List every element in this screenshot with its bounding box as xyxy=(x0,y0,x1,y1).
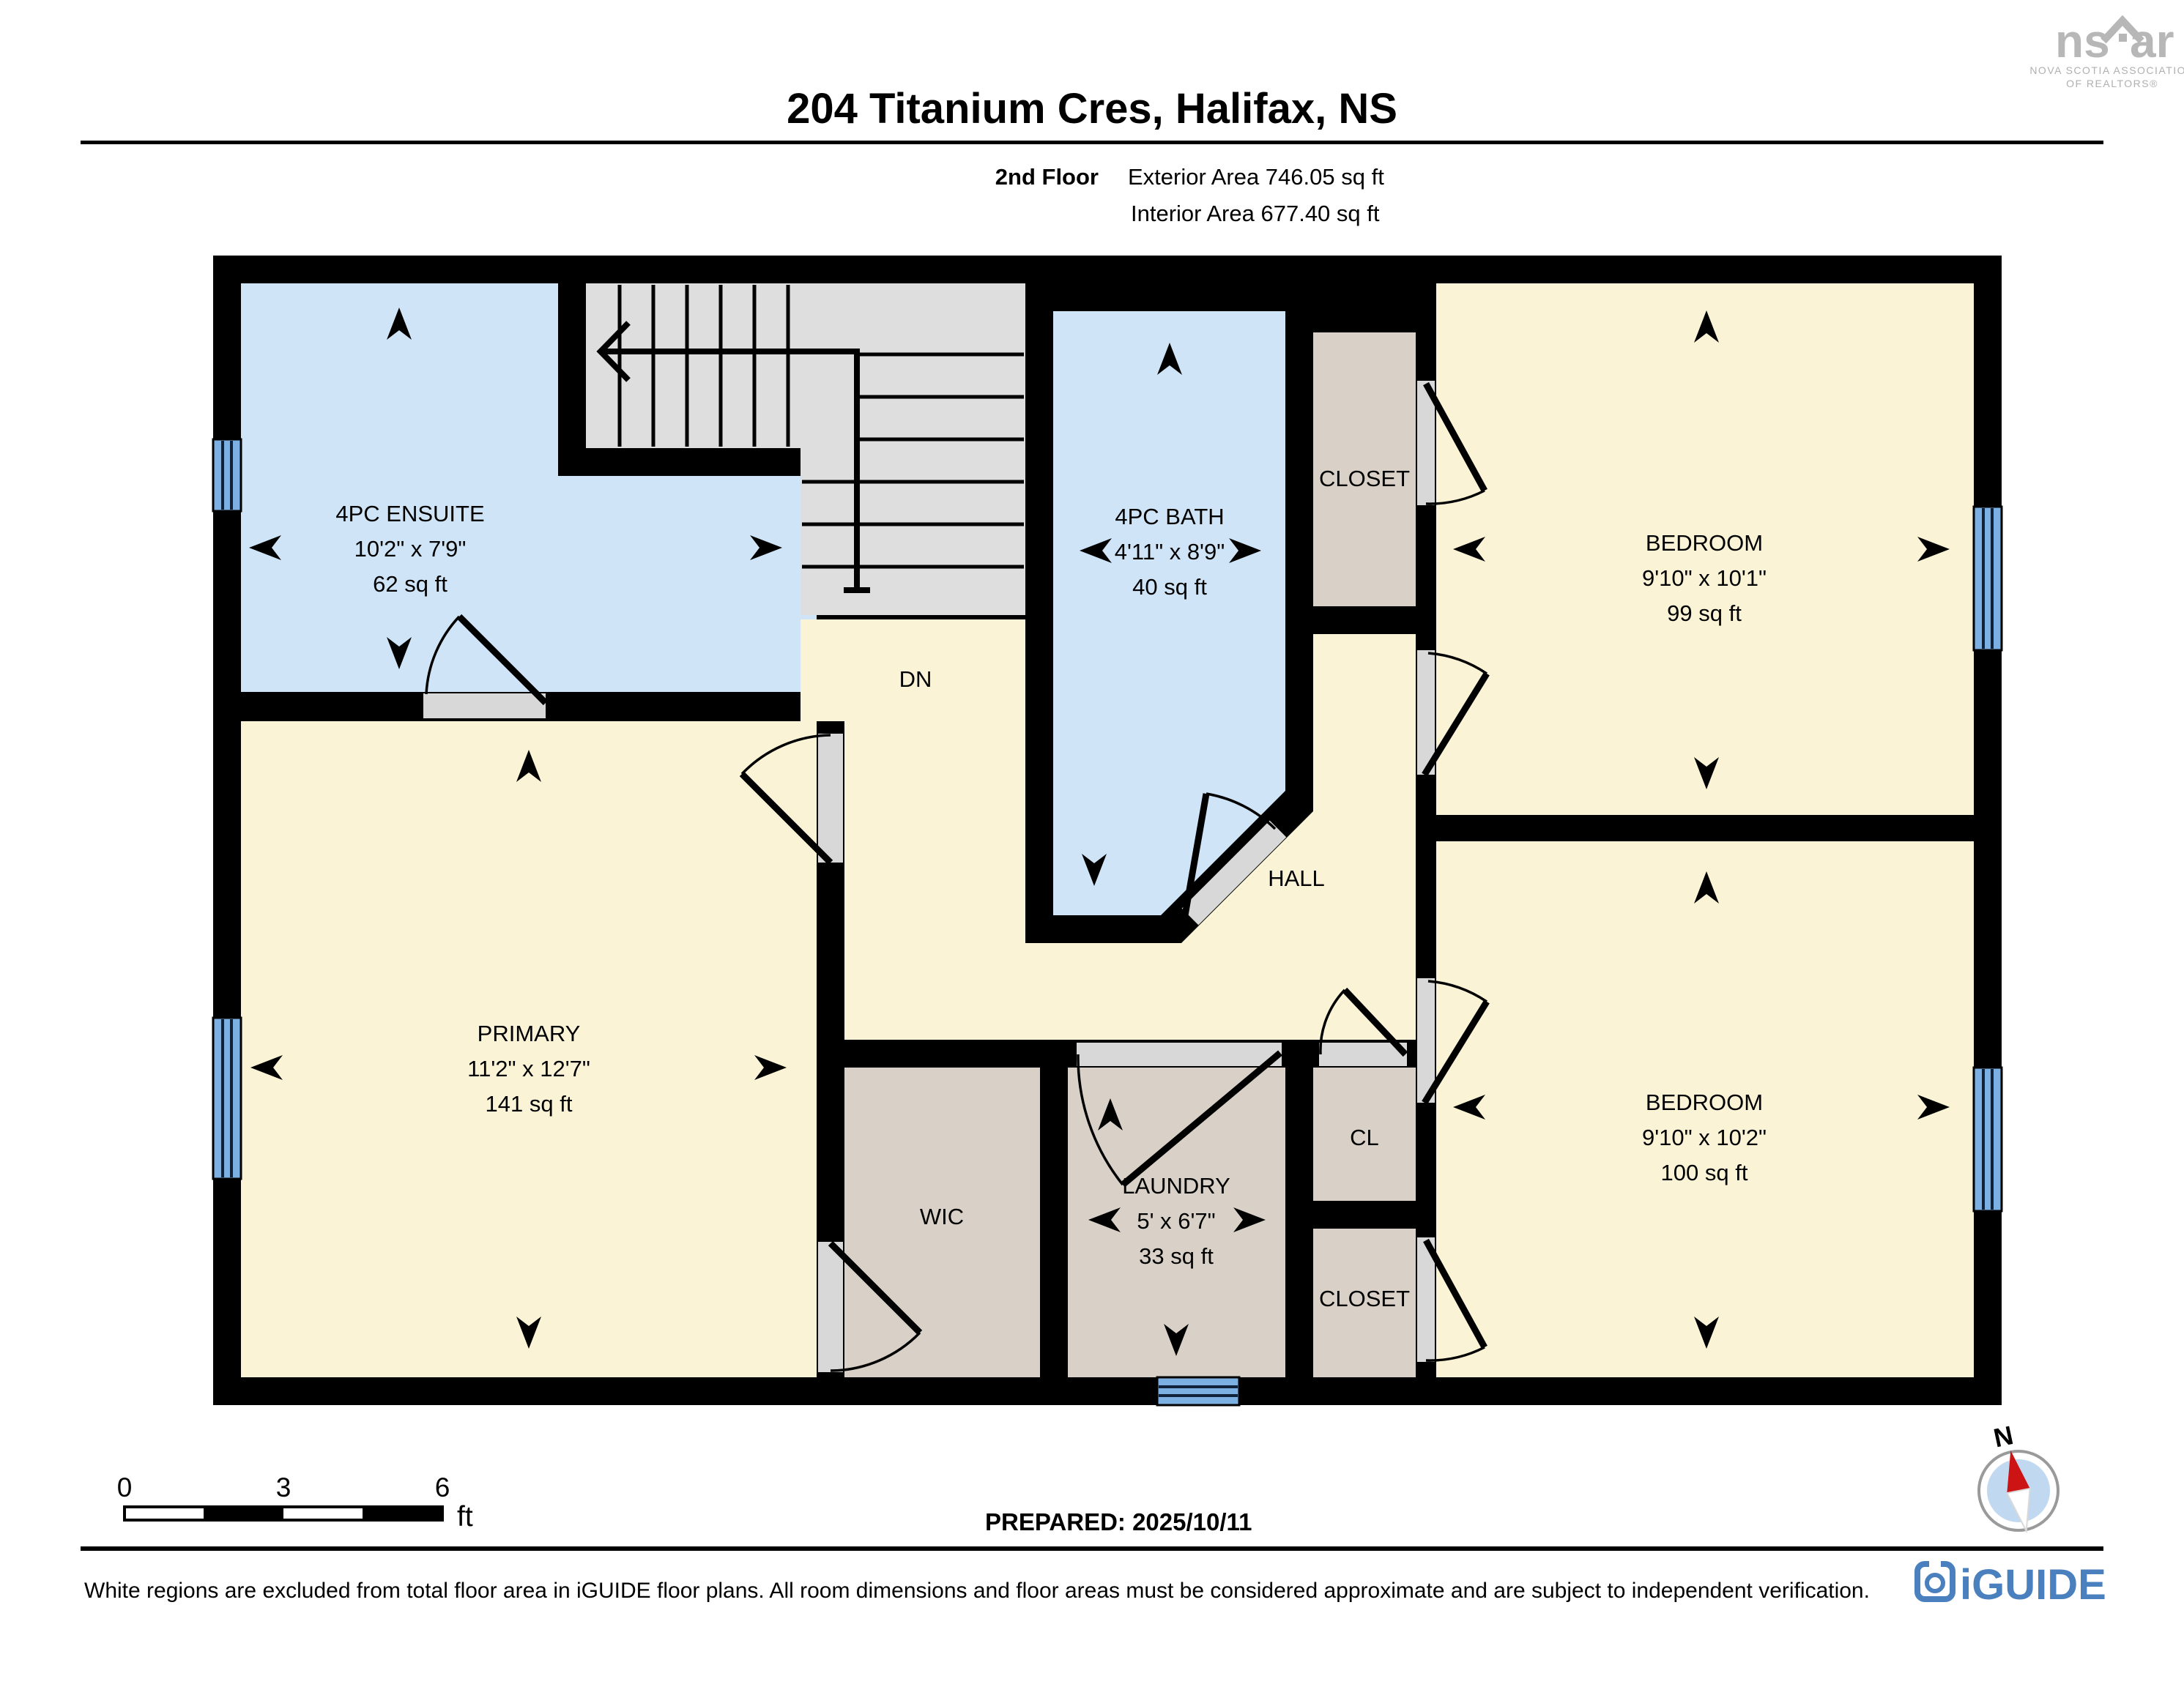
window-bedroom-top xyxy=(1974,507,2002,650)
footer-disclaimer: White regions are excluded from total fl… xyxy=(84,1579,1870,1603)
sill-wic-door xyxy=(818,1242,843,1372)
iguide-logo: iGUIDE xyxy=(1917,1561,2106,1609)
label-cl: CL xyxy=(1350,1125,1379,1150)
label-bedroom-bottom-name: BEDROOM xyxy=(1646,1090,1763,1115)
sill-bedroom-top-door xyxy=(1417,650,1435,775)
label-laundry-dims: 5' x 6'7" xyxy=(1137,1208,1215,1234)
sill-primary-door xyxy=(818,734,843,863)
iguide-notch-icon xyxy=(1929,1561,1941,1567)
label-ensuite-dims: 10'2" x 7'9" xyxy=(354,536,467,562)
window-ensuite xyxy=(213,439,241,511)
label-hall: HALL xyxy=(1268,865,1325,891)
label-wic: WIC xyxy=(920,1204,964,1229)
label-primary-dims: 11'2" x 12'7" xyxy=(467,1056,590,1081)
label-closet-top: CLOSET xyxy=(1319,466,1410,491)
label-laundry-name: LAUNDRY xyxy=(1122,1173,1230,1199)
page-title: 204 Titanium Cres, Halifax, NS xyxy=(787,85,1397,133)
sill-laundry-door xyxy=(1077,1043,1282,1066)
label-primary-area: 141 sq ft xyxy=(486,1091,573,1117)
exterior-area-label: Exterior Area 746.05 sq ft xyxy=(1128,164,1384,190)
nsar-wordmark-left: ns xyxy=(2055,15,2110,67)
nsar-wordmark-right: ar xyxy=(2130,15,2174,67)
iguide-camera-icon xyxy=(1917,1564,1953,1599)
room-bath xyxy=(1053,311,1285,915)
floorplan-canvas: 204 Titanium Cres, Halifax, NS 2nd Floor… xyxy=(0,0,2184,1687)
label-bedroom-bottom-dims: 9'10" x 10'2" xyxy=(1642,1125,1767,1150)
window-bedroom-bottom xyxy=(1974,1068,2002,1211)
label-bedroom-top-dims: 9'10" x 10'1" xyxy=(1642,565,1767,591)
compass: N xyxy=(1979,1420,2058,1533)
prepared-date: PREPARED: 2025/10/11 xyxy=(985,1508,1252,1535)
label-primary-name: PRIMARY xyxy=(478,1021,581,1046)
nsar-house-body-icon xyxy=(2119,34,2127,42)
sill-ensuite-door xyxy=(423,693,546,718)
scale-label-0: 0 xyxy=(117,1472,133,1502)
nsar-subtext-line1: NOVA SCOTIA ASSOCIATION xyxy=(2029,64,2184,76)
window-laundry xyxy=(1157,1377,1239,1405)
scale-bar: 0 3 6 ft xyxy=(117,1472,473,1533)
sill-bedroom-bottom-door xyxy=(1417,978,1435,1103)
label-ensuite-name: 4PC ENSUITE xyxy=(335,501,484,526)
scale-label-3: 3 xyxy=(276,1472,291,1502)
floorplan-page: 204 Titanium Cres, Halifax, NS 2nd Floor… xyxy=(0,0,2184,1687)
label-ensuite-area: 62 sq ft xyxy=(373,571,447,597)
iguide-lens-icon xyxy=(1927,1575,1943,1591)
room-hall-band xyxy=(1025,943,1416,1040)
floor-plan: 4PC ENSUITE 10'2" x 7'9" 62 sq ft 4PC BA… xyxy=(213,256,2002,1405)
label-bath-area: 40 sq ft xyxy=(1132,574,1207,600)
scale-bar-segment-1 xyxy=(204,1507,283,1520)
label-laundry-area: 33 sq ft xyxy=(1139,1243,1214,1269)
label-bath-dims: 4'11" x 8'9" xyxy=(1115,539,1225,565)
header: 204 Titanium Cres, Halifax, NS 2nd Floor… xyxy=(81,85,2103,226)
label-closet-bottom: CLOSET xyxy=(1319,1286,1410,1311)
iguide-wordmark: iGUIDE xyxy=(1960,1561,2106,1609)
window-primary xyxy=(213,1018,241,1179)
label-bath-name: 4PC BATH xyxy=(1115,504,1224,529)
scale-unit: ft xyxy=(457,1501,473,1533)
label-stairs-dn: DN xyxy=(899,666,932,692)
room-primary xyxy=(241,721,817,1377)
title-divider xyxy=(81,141,2103,144)
label-bedroom-top-area: 99 sq ft xyxy=(1667,600,1742,626)
compass-north-label: N xyxy=(1991,1420,2016,1453)
label-bedroom-bottom-area: 100 sq ft xyxy=(1661,1160,1748,1185)
nsar-subtext-line2: OF REALTORS® xyxy=(2066,78,2158,89)
footer: White regions are excluded from total fl… xyxy=(81,1546,2106,1609)
floor-label: 2nd Floor xyxy=(995,164,1099,190)
room-hall-east-strip xyxy=(1313,634,1416,949)
nsar-logo: ns ar NOVA SCOTIA ASSOCIATION OF REALTOR… xyxy=(2029,15,2184,89)
footer-divider xyxy=(81,1546,2103,1551)
scale-label-6: 6 xyxy=(435,1472,450,1502)
scale-bar-segment-2 xyxy=(363,1507,442,1520)
label-bedroom-top-name: BEDROOM xyxy=(1646,530,1763,556)
interior-area-label: Interior Area 677.40 sq ft xyxy=(1131,201,1380,226)
